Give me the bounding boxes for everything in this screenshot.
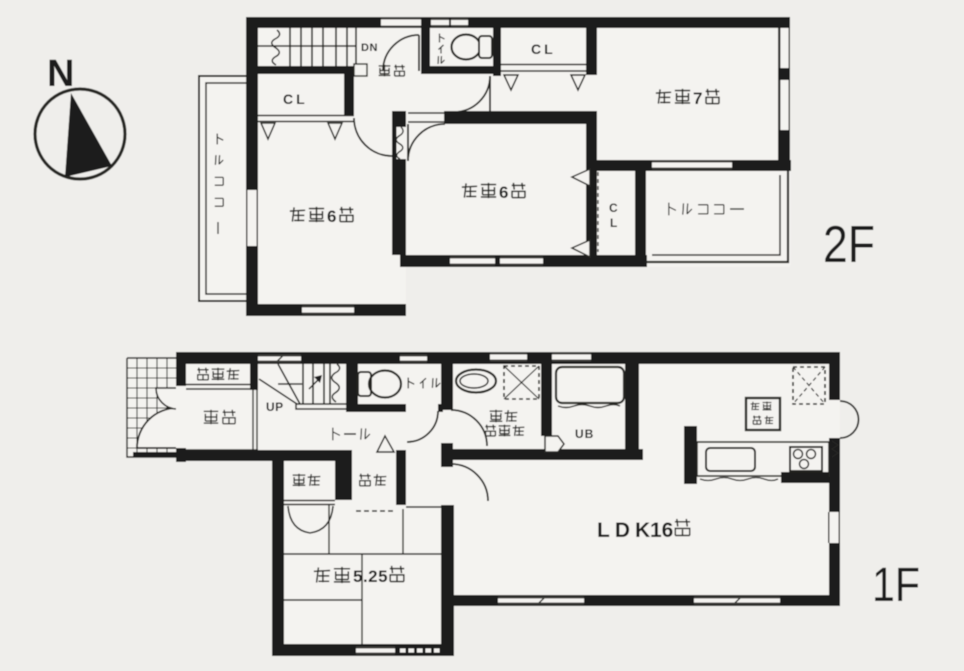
svg-text:CL: CL [283,91,308,107]
svg-text:6: 6 [327,207,336,226]
svg-text:16: 16 [650,519,673,542]
svg-text:CL: CL [531,41,556,57]
svg-text:DN: DN [361,42,378,54]
svg-text:L: L [610,216,617,230]
svg-text:UP: UP [266,400,284,414]
svg-text:2F: 2F [823,216,875,274]
svg-text:5.25: 5.25 [353,567,388,586]
svg-text:6: 6 [499,183,508,202]
svg-text:C: C [609,201,618,215]
svg-text:LDK: LDK [597,519,655,542]
svg-text:UB: UB [575,427,594,441]
svg-text:7: 7 [693,89,702,108]
svg-text:1F: 1F [872,559,920,612]
